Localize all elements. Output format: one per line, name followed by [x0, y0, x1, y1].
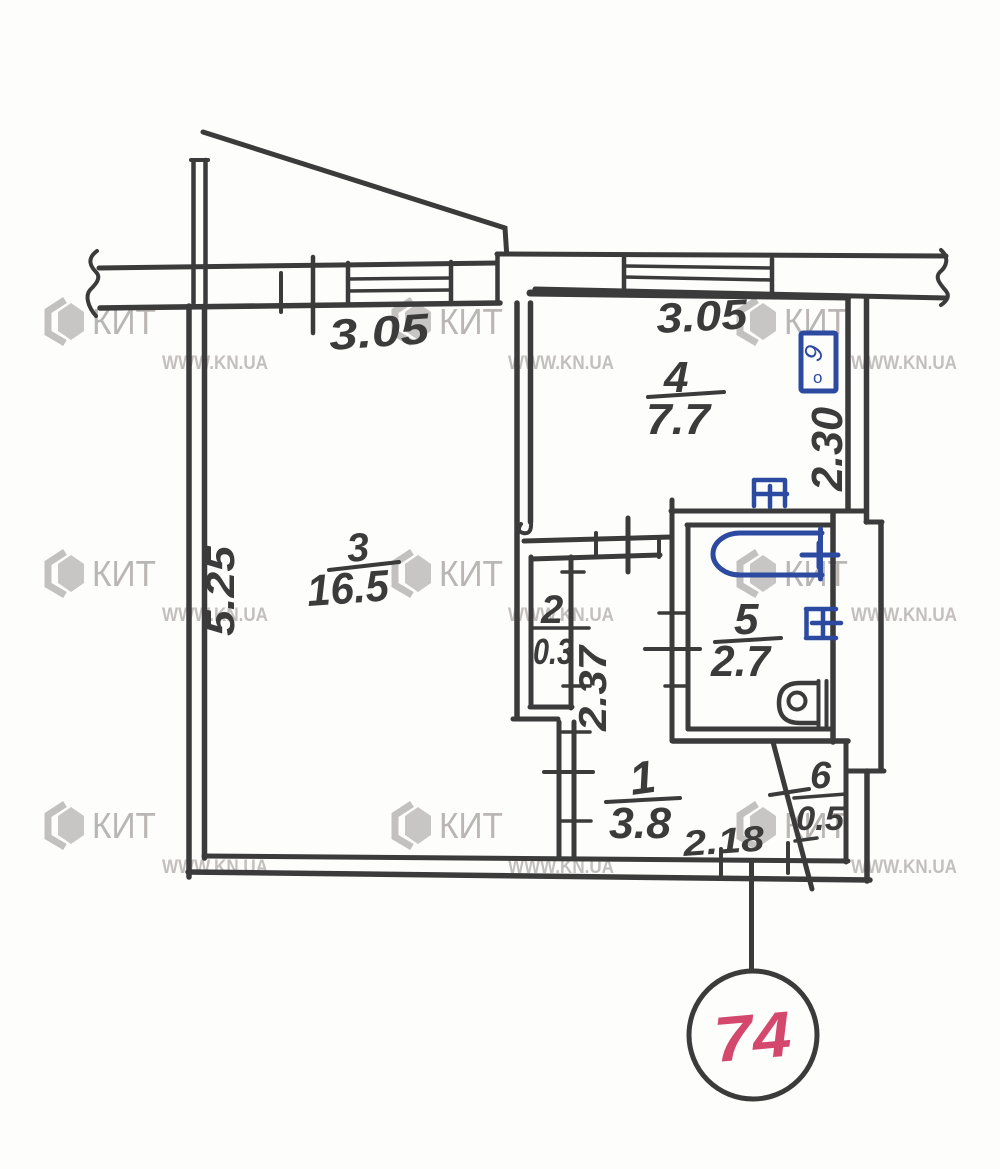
svg-text:0.3: 0.3 — [533, 631, 573, 672]
svg-text:3.8: 3.8 — [609, 799, 672, 848]
svg-text:o: o — [813, 368, 822, 387]
svg-text:0.5: 0.5 — [796, 800, 845, 838]
svg-text:КИТ: КИТ — [439, 805, 503, 846]
svg-text:16.5: 16.5 — [305, 561, 391, 616]
svg-text:WWW.KN.UA: WWW.KN.UA — [162, 353, 268, 374]
svg-text:5.25: 5.25 — [199, 545, 243, 636]
svg-text:WWW.KN.UA: WWW.KN.UA — [508, 353, 614, 374]
svg-text:КИТ: КИТ — [92, 805, 156, 846]
svg-text:1: 1 — [626, 750, 659, 805]
svg-text:КИТ: КИТ — [439, 301, 503, 342]
svg-text:WWW.KN.UA: WWW.KN.UA — [851, 605, 957, 626]
svg-text:2.37: 2.37 — [572, 643, 615, 732]
svg-text:74: 74 — [711, 998, 794, 1076]
svg-text:6: 6 — [810, 755, 832, 797]
svg-text:2.7: 2.7 — [710, 637, 772, 686]
svg-text:3.05: 3.05 — [327, 305, 431, 360]
svg-text:2.30: 2.30 — [803, 406, 852, 491]
svg-text:КИТ: КИТ — [439, 553, 503, 594]
svg-text:7.7: 7.7 — [646, 395, 713, 444]
svg-text:КИТ: КИТ — [92, 553, 156, 594]
svg-text:3.05: 3.05 — [655, 290, 749, 342]
svg-text:2.18: 2.18 — [681, 817, 766, 864]
svg-text:2: 2 — [540, 588, 563, 632]
